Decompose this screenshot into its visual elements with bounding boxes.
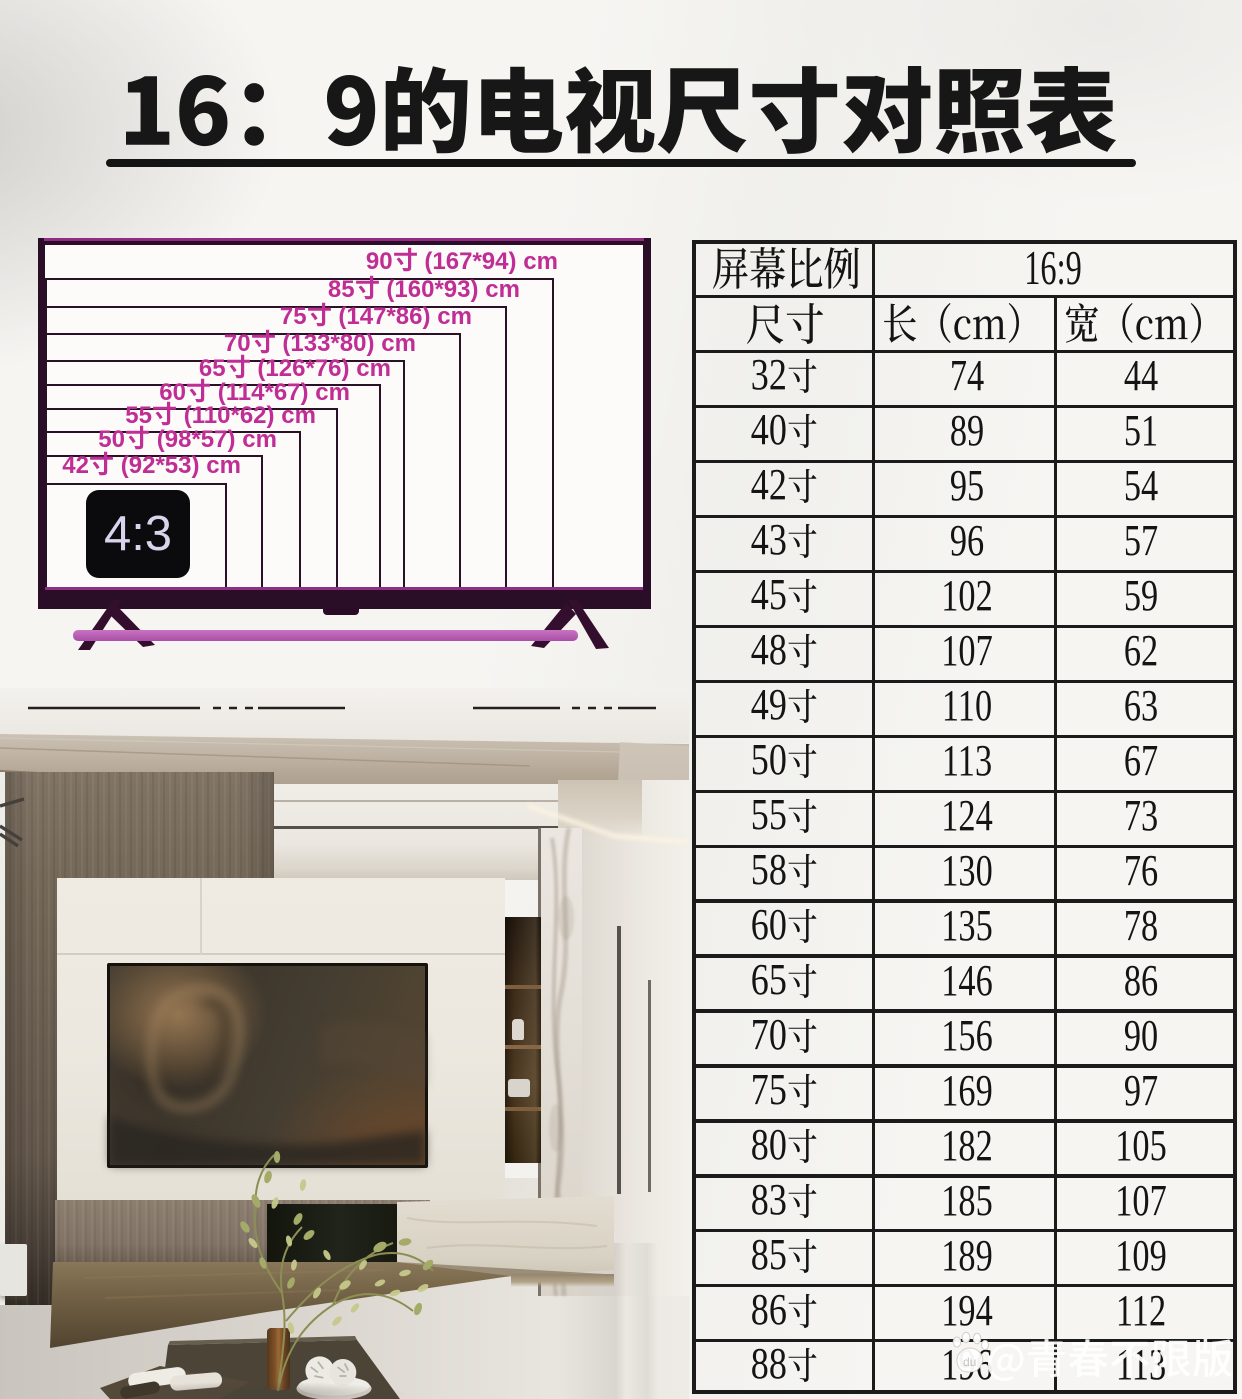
svg-text:du: du xyxy=(963,1355,976,1369)
